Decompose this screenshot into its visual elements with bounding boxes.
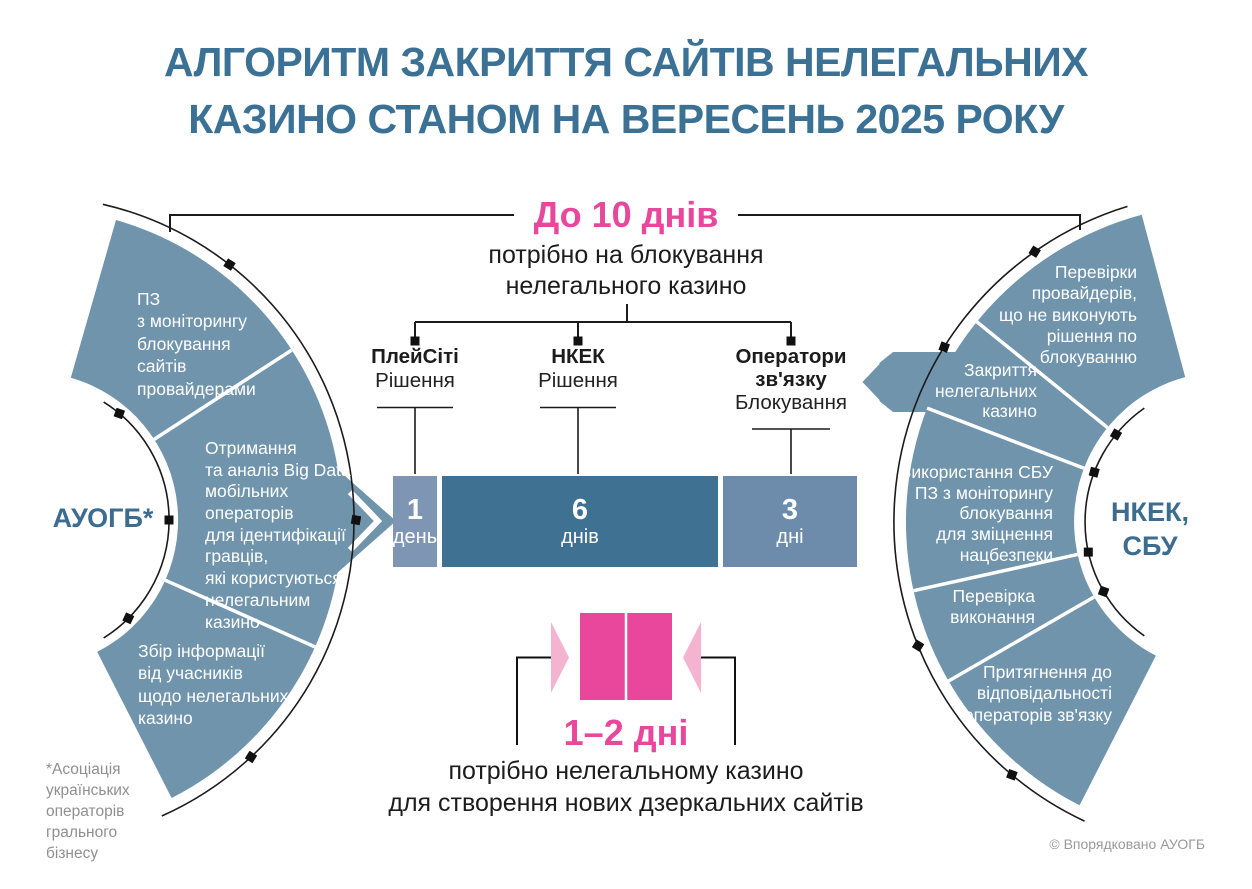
- column-action: Блокування: [701, 391, 881, 415]
- left-fan-segment-label: Отримання та аналіз Big Data мобільних о…: [205, 438, 351, 633]
- column-name: ПлейСіті: [325, 346, 505, 369]
- triangle-left-icon: [683, 622, 701, 693]
- right-fan-segment-label: Перевірки провайдерів, що не виконують р…: [999, 262, 1137, 369]
- bar-segment: 3 дні: [723, 476, 857, 567]
- left-fan-segment-label: ПЗ з моніторингу блокування сайтів прова…: [137, 288, 256, 400]
- bar-segment: 6 днів: [442, 476, 718, 567]
- column-playcity: ПлейСіті Рішення: [325, 346, 505, 393]
- column-name: НКЕК: [488, 346, 668, 369]
- segment-unit: днів: [561, 526, 599, 548]
- column-operators: Оператори зв'язку Блокування: [701, 346, 881, 415]
- segment-value: 3: [782, 495, 798, 525]
- column-name: Оператори зв'язку: [701, 346, 881, 391]
- top-duration-wrap: До 10 днів: [0, 194, 1252, 236]
- segment-value: 1: [407, 495, 423, 525]
- mirror-duration-label: 1–2 дні: [0, 712, 1252, 754]
- copyright: © Впорядковано АУОГБ: [1049, 836, 1205, 852]
- right-fan-title: НКЕК, СБУ: [1080, 496, 1220, 564]
- column-action: Рішення: [488, 369, 668, 393]
- right-fan-segment-label: Перевірка виконання: [950, 586, 1035, 629]
- bar-segment: 1 день: [393, 476, 437, 567]
- segment-unit: дні: [776, 526, 803, 548]
- segment-unit: день: [393, 526, 437, 548]
- column-connector-lines: [415, 304, 791, 337]
- triangle-right-icon: [551, 622, 569, 693]
- right-fan-segment-label: Закриття нелегальних казино: [935, 360, 1037, 422]
- column-action: Рішення: [325, 369, 505, 393]
- column-nkek: НКЕК Рішення: [488, 346, 668, 393]
- label-to-bar-lines: [377, 408, 830, 475]
- right-fan-segment-label: Використання СБУ ПЗ з моніторингу блокув…: [900, 462, 1053, 565]
- mirror-subtitle: потрібно нелегальному казино для створен…: [0, 756, 1252, 819]
- left-fan-title: АУОГБ*: [38, 502, 168, 536]
- top-duration-label: До 10 днів: [514, 194, 739, 236]
- footnote: *Асоціація українських операторів гральн…: [46, 760, 130, 865]
- timeline-bar: 1 день 6 днів 3 дні: [393, 476, 857, 567]
- page-title: АЛГОРИТМ ЗАКРИТТЯ САЙТІВ НЕЛЕГАЛЬНИХ КАЗ…: [0, 34, 1252, 147]
- segment-value: 6: [572, 495, 588, 525]
